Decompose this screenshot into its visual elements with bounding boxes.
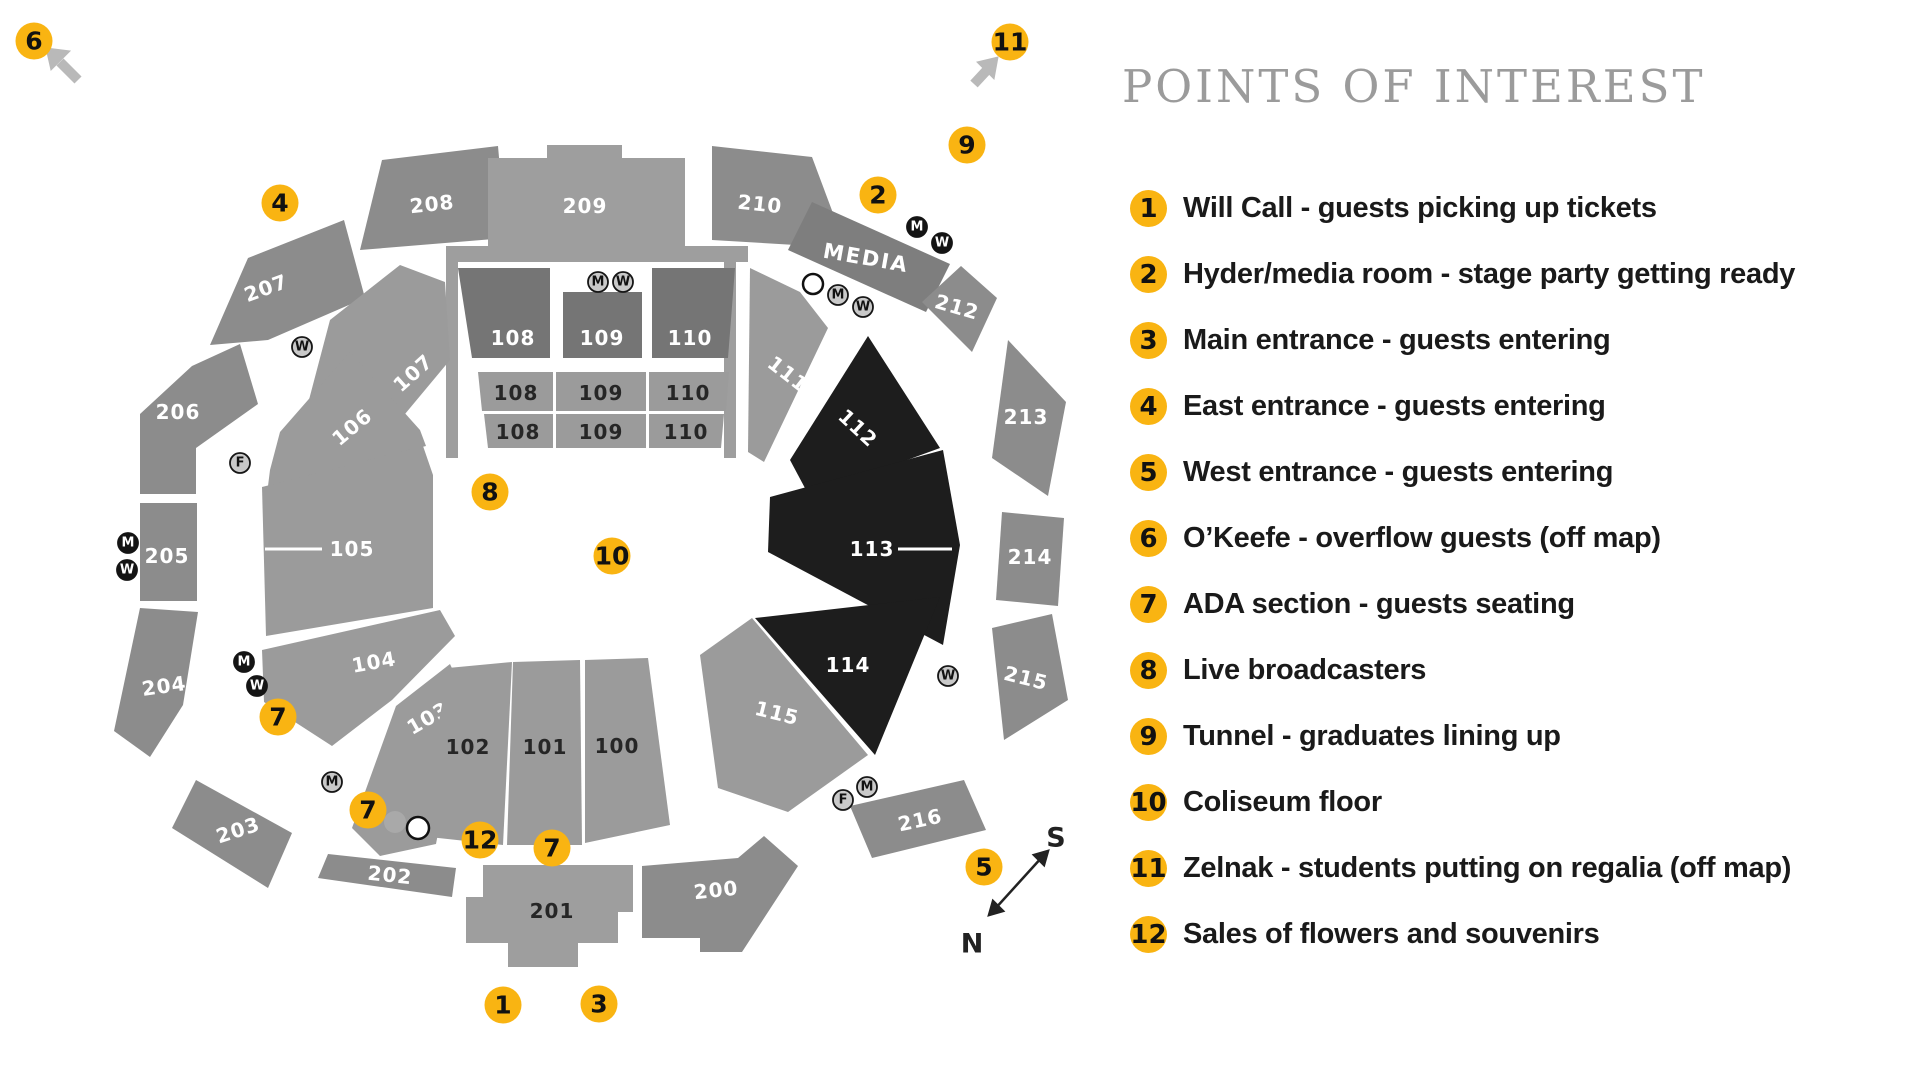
map-marker-7: 7	[350, 792, 387, 829]
map-section-208: 208	[360, 146, 506, 250]
map-section-108-row2: 108	[484, 414, 553, 448]
svg-text:109: 109	[579, 381, 624, 405]
legend-item-number: 8	[1130, 652, 1167, 689]
svg-text:7: 7	[543, 834, 560, 863]
arrow-up-right-icon	[974, 57, 998, 84]
svg-text:4: 4	[271, 189, 288, 218]
coliseum-seating-map: 207 208 209 210 MEDIA 212 213 214	[0, 0, 1140, 1080]
map-section-110-upper: 110	[652, 268, 735, 358]
map-marker-5: 5	[966, 849, 1003, 886]
map-section-110-row2: 110	[649, 414, 724, 448]
map-section-109-upper: 109	[563, 292, 642, 358]
svg-text:213: 213	[1004, 405, 1049, 429]
legend-item: 1 Will Call - guests picking up tickets	[1130, 190, 1795, 227]
svg-text:9: 9	[958, 131, 975, 160]
legend-item: 10 Coliseum floor	[1130, 784, 1795, 821]
points-of-interest-legend: POINTS OF INTEREST 1 Will Call - guests …	[1122, 0, 1912, 1080]
map-section-214: 214	[996, 512, 1064, 606]
map-section-203: 203	[172, 780, 292, 888]
family-restroom-icon: F	[833, 790, 853, 810]
svg-text:109: 109	[580, 326, 625, 350]
map-marker-7: 7	[534, 830, 571, 867]
svg-text:W: W	[616, 275, 630, 290]
legend-item-label: Hyder/media room - stage party getting r…	[1183, 258, 1795, 291]
svg-text:M: M	[911, 220, 924, 235]
map-marker-2: 2	[860, 177, 897, 214]
legend-item-number: 12	[1130, 916, 1167, 953]
svg-text:1: 1	[494, 991, 511, 1020]
svg-text:7: 7	[359, 796, 376, 825]
svg-text:M: M	[832, 288, 845, 303]
svg-text:W: W	[120, 563, 134, 578]
svg-text:3: 3	[590, 990, 607, 1019]
legend-item-number: 2	[1130, 256, 1167, 293]
legend-item-number: 6	[1130, 520, 1167, 557]
svg-text:114: 114	[826, 653, 871, 677]
legend-item-label: Coliseum floor	[1183, 786, 1382, 819]
mens-restroom-icon: M	[588, 272, 608, 292]
svg-text:8: 8	[481, 478, 498, 507]
womens-restroom-icon: W	[292, 337, 312, 357]
legend-item: 7 ADA section - guests seating	[1130, 586, 1795, 623]
svg-text:205: 205	[145, 544, 190, 568]
legend-item-label: West entrance - guests entering	[1183, 456, 1613, 489]
womens-restroom-icon: W	[247, 676, 267, 696]
legend-item-number: 10	[1130, 784, 1167, 821]
legend-item-label: Tunnel - graduates lining up	[1183, 720, 1561, 753]
svg-text:M: M	[238, 655, 251, 670]
mens-restroom-icon: M	[857, 777, 877, 797]
family-restroom-icon: F	[230, 453, 250, 473]
map-section-200: 200	[642, 836, 798, 952]
svg-text:206: 206	[156, 400, 201, 424]
svg-text:W: W	[250, 679, 264, 694]
svg-text:M: M	[326, 775, 339, 790]
legend-item: 8 Live broadcasters	[1130, 652, 1795, 689]
svg-text:102: 102	[446, 735, 491, 759]
map-marker-9: 9	[949, 127, 986, 164]
map-section-108-upper: 108	[458, 268, 550, 358]
womens-restroom-icon: W	[853, 297, 873, 317]
svg-text:108: 108	[496, 420, 541, 444]
legend-item-label: East entrance - guests entering	[1183, 390, 1606, 423]
map-marker-11: 11	[992, 24, 1029, 61]
svg-text:209: 209	[563, 194, 608, 218]
svg-text:10: 10	[595, 542, 630, 571]
legend-item-label: Sales of flowers and souvenirs	[1183, 918, 1599, 951]
womens-restroom-icon: W	[117, 560, 137, 580]
svg-text:108: 108	[494, 381, 539, 405]
map-section-215: 215	[992, 614, 1068, 740]
svg-text:2: 2	[869, 181, 886, 210]
compass: S N	[961, 823, 1066, 960]
svg-text:W: W	[856, 300, 870, 315]
legend-item-number: 5	[1130, 454, 1167, 491]
legend-item: 2 Hyder/media room - stage party getting…	[1130, 256, 1795, 293]
svg-text:6: 6	[25, 27, 42, 56]
svg-text:110: 110	[666, 381, 711, 405]
womens-restroom-icon: W	[938, 666, 958, 686]
legend-item: 11 Zelnak - students putting on regalia …	[1130, 850, 1795, 887]
svg-text:5: 5	[975, 853, 992, 882]
map-section-109-row2: 109	[556, 414, 646, 448]
svg-text:100: 100	[595, 734, 640, 758]
legend-item-number: 9	[1130, 718, 1167, 755]
map-marker-1: 1	[485, 987, 522, 1024]
legend-item-label: Will Call - guests picking up tickets	[1183, 192, 1657, 225]
unlabeled-circle-icon	[407, 817, 429, 839]
womens-restroom-icon: W	[613, 272, 633, 292]
mens-restroom-icon: M	[322, 772, 342, 792]
map-section-media: MEDIA	[788, 202, 950, 312]
map-section-109-row1: 109	[556, 372, 646, 411]
legend-item: 4 East entrance - guests entering	[1130, 388, 1795, 425]
arrow-up-left-icon	[46, 48, 78, 80]
map-section-101: 101	[507, 660, 582, 845]
map-section-108-row1: 108	[478, 372, 553, 411]
legend-item: 5 West entrance - guests entering	[1130, 454, 1795, 491]
svg-text:214: 214	[1008, 545, 1053, 569]
legend-item-label: Zelnak - students putting on regalia (of…	[1183, 852, 1791, 885]
svg-text:M: M	[122, 536, 135, 551]
legend-item: 12 Sales of flowers and souvenirs	[1130, 916, 1795, 953]
svg-text:F: F	[839, 793, 848, 808]
map-marker-10: 10	[594, 538, 631, 575]
svg-text:208: 208	[408, 190, 455, 219]
map-section-110-row1: 110	[649, 372, 729, 411]
map-section-202: 202	[318, 854, 456, 897]
legend-item-number: 1	[1130, 190, 1167, 227]
legend-item-label: ADA section - guests seating	[1183, 588, 1575, 621]
unlabeled-circle-icon	[803, 274, 823, 294]
map-section-213: 213	[992, 340, 1066, 496]
legend-item-number: 3	[1130, 322, 1167, 359]
map-section-100: 100	[585, 658, 670, 843]
svg-text:109: 109	[579, 420, 624, 444]
mens-restroom-icon: M	[907, 217, 927, 237]
map-section-205: 205	[140, 503, 197, 601]
map-marker-4: 4	[262, 185, 299, 222]
map-section-204: 204	[114, 608, 198, 757]
map-marker-8: 8	[472, 474, 509, 511]
svg-text:W: W	[295, 340, 309, 355]
legend-list: 1 Will Call - guests picking up tickets …	[1130, 190, 1795, 982]
svg-text:113: 113	[850, 537, 895, 561]
legend-title: POINTS OF INTEREST	[1122, 60, 1705, 113]
womens-restroom-icon: W	[932, 233, 952, 253]
svg-text:11: 11	[993, 28, 1028, 57]
legend-item-label: Main entrance - guests entering	[1183, 324, 1610, 357]
svg-text:M: M	[592, 275, 605, 290]
map-marker-3: 3	[581, 986, 618, 1023]
legend-item-label: Live broadcasters	[1183, 654, 1426, 687]
svg-text:101: 101	[523, 735, 568, 759]
mens-restroom-icon: M	[118, 533, 138, 553]
legend-item-number: 11	[1130, 850, 1167, 887]
svg-text:201: 201	[530, 899, 575, 923]
legend-item-number: 7	[1130, 586, 1167, 623]
gray-circle-icon	[384, 811, 406, 833]
svg-text:7: 7	[269, 703, 286, 732]
map-marker-12: 12	[462, 822, 499, 859]
map-marker-7: 7	[260, 699, 297, 736]
mens-restroom-icon: M	[234, 652, 254, 672]
legend-item-label: O’Keefe - overflow guests (off map)	[1183, 522, 1661, 555]
svg-text:F: F	[236, 456, 245, 471]
svg-text:202: 202	[366, 861, 413, 890]
svg-text:M: M	[861, 780, 874, 795]
map-marker-6: 6	[16, 23, 53, 60]
svg-text:W: W	[941, 669, 955, 684]
legend-item: 3 Main entrance - guests entering	[1130, 322, 1795, 359]
svg-text:W: W	[935, 236, 949, 251]
points-of-interest-page: 207 208 209 210 MEDIA 212 213 214	[0, 0, 1920, 1080]
svg-text:200: 200	[692, 876, 739, 905]
legend-item: 6 O’Keefe - overflow guests (off map)	[1130, 520, 1795, 557]
svg-text:110: 110	[668, 326, 713, 350]
svg-text:210: 210	[736, 190, 783, 219]
legend-item: 9 Tunnel - graduates lining up	[1130, 718, 1795, 755]
map-section-201: 201	[466, 865, 633, 967]
svg-text:12: 12	[463, 826, 498, 855]
legend-item-number: 4	[1130, 388, 1167, 425]
svg-text:110: 110	[664, 420, 709, 444]
compass-north-label: N	[961, 929, 984, 960]
svg-text:105: 105	[330, 537, 375, 561]
svg-text:108: 108	[491, 326, 536, 350]
compass-south-label: S	[1046, 823, 1065, 854]
mens-restroom-icon: M	[828, 285, 848, 305]
